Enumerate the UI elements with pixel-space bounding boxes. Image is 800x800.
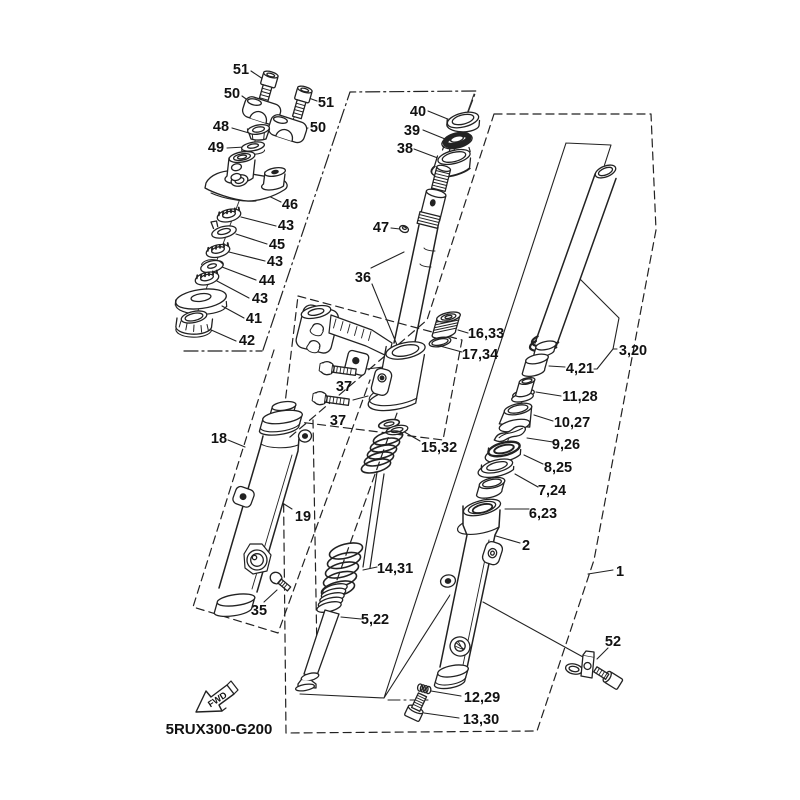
svg-text:10,27: 10,27	[554, 415, 590, 431]
svg-text:6,23: 6,23	[529, 506, 557, 522]
svg-text:1: 1	[616, 564, 624, 580]
svg-text:7,24: 7,24	[538, 483, 566, 499]
svg-text:37: 37	[330, 413, 346, 429]
svg-text:3,20: 3,20	[619, 343, 647, 359]
svg-text:18: 18	[211, 431, 227, 447]
svg-text:5RUX300-G200: 5RUX300-G200	[166, 721, 273, 738]
svg-text:43: 43	[252, 291, 268, 307]
svg-text:5,22: 5,22	[361, 612, 389, 628]
svg-text:13,30: 13,30	[463, 712, 499, 728]
svg-text:41: 41	[246, 311, 262, 327]
svg-text:50: 50	[310, 120, 326, 136]
svg-text:48: 48	[213, 119, 229, 135]
svg-text:47: 47	[373, 220, 389, 236]
svg-text:4,21: 4,21	[566, 361, 594, 377]
svg-text:46: 46	[282, 197, 298, 213]
svg-text:35: 35	[251, 603, 267, 619]
svg-text:43: 43	[278, 218, 294, 234]
svg-text:45: 45	[269, 237, 285, 253]
svg-text:8,25: 8,25	[544, 460, 572, 476]
svg-text:44: 44	[259, 273, 275, 289]
svg-text:36: 36	[355, 270, 371, 286]
svg-text:39: 39	[404, 123, 420, 139]
svg-text:52: 52	[605, 634, 621, 650]
svg-text:49: 49	[208, 140, 224, 156]
svg-text:37: 37	[336, 379, 352, 395]
svg-text:51: 51	[318, 95, 334, 111]
svg-text:40: 40	[410, 104, 426, 120]
svg-text:14,31: 14,31	[377, 561, 413, 577]
svg-text:11,28: 11,28	[562, 389, 598, 405]
svg-text:16,33: 16,33	[468, 326, 504, 342]
svg-text:38: 38	[397, 141, 413, 157]
svg-text:50: 50	[224, 86, 240, 102]
svg-text:17,34: 17,34	[462, 347, 498, 363]
svg-text:19: 19	[295, 509, 311, 525]
svg-text:51: 51	[233, 62, 249, 78]
svg-text:2: 2	[522, 538, 530, 554]
svg-text:12,29: 12,29	[464, 690, 500, 706]
svg-text:43: 43	[267, 254, 283, 270]
svg-text:9,26: 9,26	[552, 437, 580, 453]
svg-text:15,32: 15,32	[421, 440, 457, 456]
svg-text:42: 42	[239, 333, 255, 349]
